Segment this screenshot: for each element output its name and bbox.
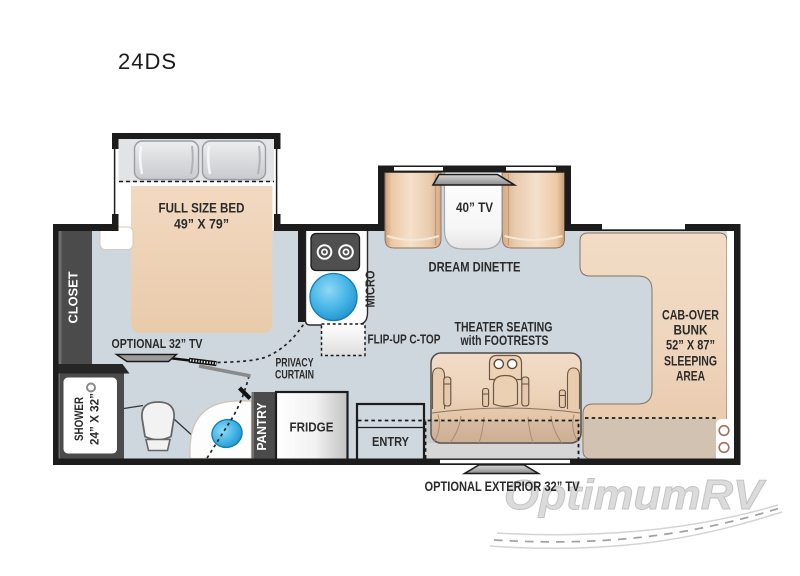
svg-text:MICRO: MICRO [364,270,378,307]
svg-text:FRIDGE: FRIDGE [290,420,334,435]
svg-text:52” X 87”: 52” X 87” [666,337,715,353]
svg-text:ENTRY: ENTRY [372,435,410,449]
svg-text:CURTAIN: CURTAIN [275,370,314,382]
svg-text:DREAM DINETTE: DREAM DINETTE [429,259,521,275]
svg-text:24” X 32”: 24” X 32” [88,393,102,445]
svg-text:OPTIONAL EXTERIOR 32” TV: OPTIONAL EXTERIOR 32” TV [425,478,581,494]
svg-text:40” TV: 40” TV [456,199,494,215]
svg-text:SLEEPING: SLEEPING [664,353,717,369]
svg-text:FULL SIZE BED: FULL SIZE BED [159,200,245,216]
svg-text:PRIVACY: PRIVACY [276,358,314,370]
svg-text:with FOOTRESTS: with FOOTRESTS [460,332,549,348]
svg-text:BUNK: BUNK [674,322,708,338]
svg-text:49” X 79”: 49” X 79” [174,216,229,232]
svg-text:FLIP-UP C-TOP: FLIP-UP C-TOP [368,332,441,347]
svg-text:OPTIONAL 32” TV: OPTIONAL 32” TV [112,336,203,351]
svg-text:24DS: 24DS [118,49,177,74]
svg-text:CLOSET: CLOSET [66,271,81,323]
svg-text:CAB-OVER: CAB-OVER [662,307,719,323]
svg-text:AREA: AREA [676,368,705,384]
svg-text:SHOWER: SHOWER [72,397,86,441]
svg-text:PANTRY: PANTRY [255,402,269,451]
